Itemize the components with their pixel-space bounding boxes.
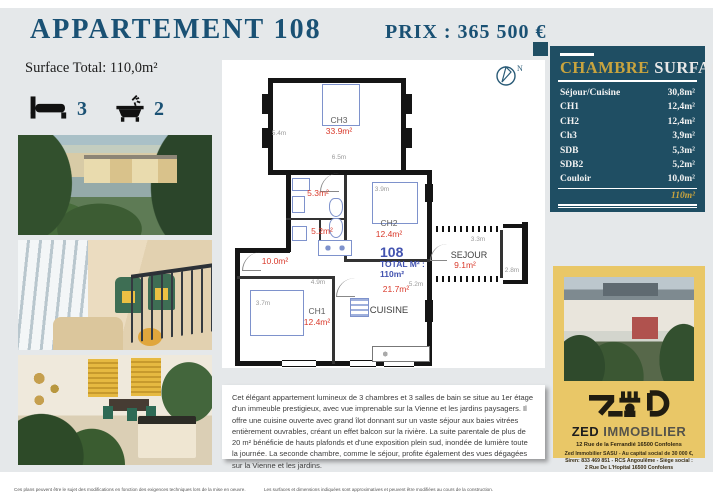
agency-name: ZED IMMOBILIER <box>553 424 705 439</box>
table-total: 110m² <box>550 190 705 203</box>
window-jamb <box>262 94 270 114</box>
row-label: CH1 <box>560 100 579 114</box>
room-area-ch2: 12.4m² <box>376 229 402 239</box>
room-label-ch1: CH1 <box>308 306 325 316</box>
dim-ch1-h: 3.7m <box>256 300 270 307</box>
photo-dining-interior <box>18 355 212 465</box>
kitchen-island <box>350 298 369 317</box>
row-value: 5,2m² <box>672 158 695 172</box>
window-jamb <box>404 128 412 148</box>
table-title: CHAMBRE SURFACE <box>560 58 695 78</box>
unit-number: 108 <box>380 244 425 260</box>
zed-logo-icon <box>553 388 705 422</box>
table-row: Couloir 10,0m² <box>550 172 705 186</box>
wall <box>503 280 525 284</box>
photo-river-town-view <box>18 135 212 235</box>
toilet <box>292 196 305 213</box>
decorative-square <box>533 42 548 56</box>
agency-panel: ZED IMMOBILIER 12 Rue de la Ferrandié 16… <box>553 266 705 458</box>
row-value: 5,3m² <box>672 144 695 158</box>
dim-ch2-w: 3.9m <box>375 186 389 193</box>
table-top-dash <box>560 53 594 56</box>
bed-icon <box>28 94 70 126</box>
wall <box>401 78 406 170</box>
partition <box>332 276 335 364</box>
photo-wall-mirrors <box>26 368 70 420</box>
room-label-ch3: CH3 <box>330 115 347 125</box>
double-sink <box>318 240 352 256</box>
footer-disclaimer-right: Les surfaces et dimensions indiquées son… <box>264 487 493 492</box>
table-title-chambre: CHAMBRE <box>560 58 650 77</box>
row-label: Ch3 <box>560 129 577 143</box>
description-text: Cet élégant appartement lumineux de 3 ch… <box>222 385 545 459</box>
shower <box>292 226 307 241</box>
row-label: CH2 <box>560 115 579 129</box>
flyer-page: APPARTEMENT 108 PRIX : 365 500 € Surface… <box>0 0 713 500</box>
dim-sejour-h: 2.8m <box>505 267 519 274</box>
photo-sofa <box>53 317 123 350</box>
table-row: SDB2 5,2m² <box>550 158 705 172</box>
bathrooms-count: 2 <box>154 98 164 121</box>
wall <box>268 78 406 83</box>
dim-ch1-w: 4.9m <box>311 279 325 286</box>
row-label: Couloir <box>560 172 591 186</box>
floorplan-panel: CH3 33.9m² 5.4m 6.5m 5.3m² 5.2m² CH2 12.… <box>222 60 545 368</box>
bathrooms-unit: 2 <box>113 92 164 127</box>
agency-building-photo <box>564 277 694 381</box>
row-value: 10,0m² <box>668 172 695 186</box>
partition <box>500 230 503 278</box>
bedrooms-unit: 3 <box>28 94 87 126</box>
unit-total-value: 110m² <box>380 270 425 280</box>
photo-iron-railing <box>131 263 212 342</box>
room-label-cuisine: CUISINE <box>370 305 409 316</box>
door-arc <box>430 244 447 261</box>
agency-name-rest: IMMOBILIER <box>599 424 686 439</box>
divider <box>558 80 697 82</box>
table-row: Séjour/Cuisine 30,8m² <box>550 86 705 100</box>
photo-kitchen-island <box>138 416 196 458</box>
table-title-surface: SURFACE <box>654 58 713 77</box>
unit-total-block: 108 TOTAL M² : 110m² <box>380 244 425 280</box>
table-row: Ch3 3,9m² <box>550 129 705 143</box>
amenities-row: 3 2 <box>28 92 164 127</box>
window-jamb <box>262 128 270 148</box>
photo-roof <box>603 283 658 295</box>
wall <box>268 78 273 170</box>
room-area-sdb2: 5.2m² <box>311 226 333 236</box>
row-value: 12,4m² <box>668 115 695 129</box>
toilet <box>329 198 343 217</box>
balcony-rail <box>436 226 500 232</box>
bed-ch1 <box>250 290 304 336</box>
bedrooms-count: 3 <box>77 98 87 121</box>
room-label-ch2: CH2 <box>380 218 397 228</box>
row-value: 12,4m² <box>668 100 695 114</box>
photo-red-awning <box>632 317 658 339</box>
room-area-ch1: 12.4m² <box>304 317 330 327</box>
agency-name-bold: ZED <box>572 424 600 439</box>
window-jamb <box>425 300 433 322</box>
door-arc <box>336 278 355 297</box>
bathtub-icon <box>113 92 147 127</box>
room-area-sejour: 9.1m² <box>454 260 476 270</box>
agency-legal-line: Siren: 833 469 851 - RCS Angoulême - Siè… <box>557 458 701 465</box>
dim-sejour-w: 3.3m <box>471 236 485 243</box>
table-row: CH2 12,4m² <box>550 115 705 129</box>
divider <box>558 204 697 206</box>
dim-ch3-h: 5.4m <box>272 130 286 137</box>
divider <box>558 188 697 190</box>
kitchen-counter <box>372 346 430 362</box>
surface-table: CHAMBRE SURFACE Séjour/Cuisine 30,8m² CH… <box>550 46 705 212</box>
row-label: Séjour/Cuisine <box>560 86 620 100</box>
row-value: 3,9m² <box>672 129 695 143</box>
photo-buildings <box>84 155 177 183</box>
room-area-ch3: 33.9m² <box>326 126 352 136</box>
window-jamb <box>425 184 433 202</box>
photo-chair <box>127 408 137 421</box>
divider <box>558 207 697 208</box>
wall <box>235 248 290 253</box>
dim-cuisine-w: 5.2m <box>409 281 423 288</box>
agency-legal: Zed Immobilier SASU - Au capital social … <box>557 451 701 472</box>
photo-balcony-interior <box>18 240 212 350</box>
photo-chair <box>103 406 113 419</box>
wall <box>235 248 240 366</box>
table-row: SDB 5,3m² <box>550 144 705 158</box>
room-area-sdb: 5.3m² <box>307 188 329 198</box>
door-arc <box>242 252 261 271</box>
agency-legal-line: 2 Rue De L'Hopital 16500 Confolens <box>557 465 701 472</box>
row-label: SDB2 <box>560 158 583 172</box>
dim-ch3-w: 6.5m <box>332 154 346 161</box>
wall <box>268 170 432 175</box>
photo-yellow-shutter <box>88 359 118 397</box>
wall <box>522 222 528 284</box>
row-value: 30,8m² <box>668 86 695 100</box>
agency-legal-line: Zed Immobilier SASU - Au capital social … <box>557 451 701 458</box>
page-title: APPARTEMENT 108 <box>30 14 322 46</box>
footer-disclaimer-left: Ces plans peuvent être le sujet des modi… <box>14 487 246 492</box>
window <box>282 360 316 367</box>
agency-address: 12 Rue de la Ferrandié 16500 Confolens <box>559 442 699 448</box>
compass-icon: N <box>494 62 524 93</box>
room-label-sejour: SEJOUR <box>451 250 488 260</box>
row-label: SDB <box>560 144 578 158</box>
wall <box>286 170 291 252</box>
room-area-cuisine: 21.7m² <box>383 284 409 294</box>
surface-total-label: Surface Total: 110,0m² <box>25 60 158 77</box>
window-jamb <box>404 94 412 114</box>
wall <box>503 224 525 228</box>
photo-yellow-shutter <box>131 358 161 396</box>
room-area-couloir: 10.0m² <box>262 256 288 266</box>
balcony-rail <box>436 276 500 282</box>
table-row: CH1 12,4m² <box>550 100 705 114</box>
compass-n: N <box>517 64 523 73</box>
price-label: PRIX : 365 500 € <box>385 21 547 44</box>
